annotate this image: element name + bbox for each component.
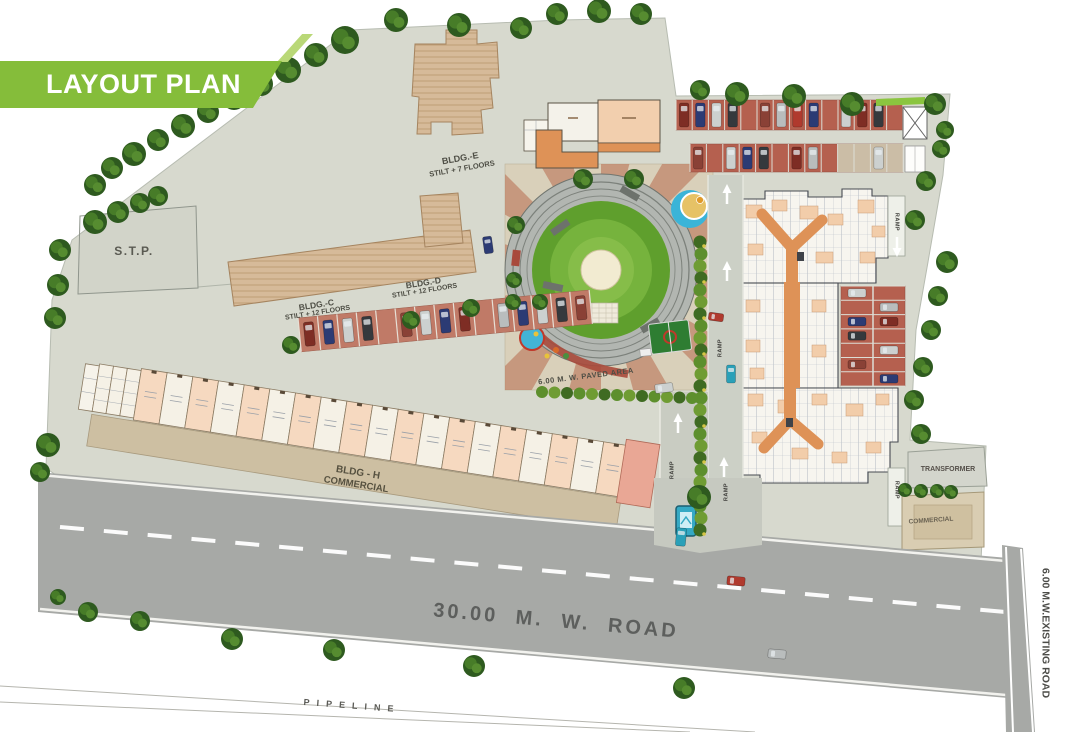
tree-icon bbox=[624, 169, 644, 189]
transformer-label: TRANSFORMER bbox=[921, 466, 975, 474]
page-title: LAYOUT PLAN bbox=[46, 69, 241, 100]
room bbox=[772, 200, 787, 211]
tree-icon bbox=[107, 201, 129, 223]
car-icon bbox=[848, 360, 866, 369]
room bbox=[746, 300, 760, 312]
parking-area-mid bbox=[841, 286, 905, 386]
tree-icon bbox=[101, 157, 123, 179]
tree-icon bbox=[147, 129, 169, 151]
tree-icon bbox=[36, 433, 60, 457]
layout-plan-canvas: LAYOUT PLAN S.T.P. BLDG.-E STILT + 7 FLO… bbox=[0, 0, 1080, 732]
car-icon bbox=[693, 147, 703, 169]
room bbox=[872, 226, 885, 237]
car-icon bbox=[792, 147, 802, 169]
tree-icon bbox=[506, 272, 522, 288]
tree-icon bbox=[463, 655, 485, 677]
tree-icon bbox=[331, 26, 359, 54]
tree-icon bbox=[323, 639, 345, 661]
tree-icon bbox=[546, 3, 568, 25]
tree-icon bbox=[507, 216, 525, 234]
tree-icon bbox=[384, 8, 408, 32]
title-banner: LAYOUT PLAN bbox=[0, 61, 282, 108]
room bbox=[812, 394, 827, 405]
tree-icon bbox=[904, 390, 924, 410]
car-icon bbox=[759, 147, 769, 169]
car-icon bbox=[482, 236, 493, 254]
tree-icon bbox=[573, 169, 593, 189]
tree-icon bbox=[905, 210, 925, 230]
car-icon bbox=[768, 649, 787, 660]
tree-icon bbox=[78, 602, 98, 622]
car-icon bbox=[675, 528, 687, 547]
lift-core bbox=[786, 418, 793, 427]
room bbox=[816, 252, 833, 263]
room bbox=[866, 442, 881, 453]
car-icon bbox=[880, 303, 898, 312]
tree-icon bbox=[687, 485, 711, 509]
tree-icon bbox=[782, 84, 806, 108]
car-icon bbox=[760, 103, 770, 127]
car-icon bbox=[809, 103, 819, 127]
car-icon bbox=[880, 317, 898, 326]
car-icon bbox=[726, 147, 736, 169]
car-icon bbox=[361, 316, 373, 341]
tree-icon bbox=[840, 92, 864, 116]
tree-icon bbox=[130, 611, 150, 631]
tree-icon bbox=[913, 357, 933, 377]
car-icon bbox=[575, 295, 587, 320]
room bbox=[812, 345, 826, 357]
tree-icon bbox=[928, 286, 948, 306]
car-icon bbox=[439, 308, 451, 333]
car-icon bbox=[323, 320, 335, 345]
car-icon bbox=[556, 297, 568, 322]
tree-icon bbox=[898, 483, 912, 497]
bldg-c-wing bbox=[420, 193, 463, 247]
tree-icon bbox=[402, 311, 420, 329]
tree-icon bbox=[630, 3, 652, 25]
tree-icon bbox=[44, 307, 66, 329]
car-icon bbox=[728, 103, 738, 127]
hatched-box-icon bbox=[903, 107, 927, 172]
tree-icon bbox=[221, 628, 243, 650]
tree-icon bbox=[587, 0, 611, 23]
room bbox=[860, 252, 875, 263]
tree-icon bbox=[462, 299, 480, 317]
tree-icon bbox=[924, 93, 946, 115]
car-icon bbox=[874, 103, 884, 127]
car-icon bbox=[303, 322, 315, 347]
ramp-label: RAMP bbox=[893, 481, 900, 499]
room bbox=[858, 200, 874, 213]
tree-icon bbox=[911, 424, 931, 444]
tree-icon bbox=[921, 320, 941, 340]
car-icon bbox=[696, 103, 706, 127]
tree-icon bbox=[936, 251, 958, 273]
car-icon bbox=[848, 332, 866, 341]
tree-icon bbox=[84, 174, 106, 196]
room bbox=[832, 452, 847, 463]
car-icon bbox=[655, 382, 674, 393]
room bbox=[792, 448, 808, 459]
car-icon bbox=[420, 310, 432, 335]
bench bbox=[640, 348, 652, 356]
tree-icon bbox=[914, 484, 928, 498]
car-icon bbox=[848, 317, 866, 326]
tree-icon bbox=[673, 677, 695, 699]
tree-icon bbox=[532, 294, 548, 310]
car-icon bbox=[743, 147, 753, 169]
existing-road-label: 6.00 M.W.EXISTING ROAD bbox=[1039, 568, 1052, 698]
tree-icon bbox=[690, 80, 710, 100]
tree-icon bbox=[282, 336, 300, 354]
tree-icon bbox=[47, 274, 69, 296]
car-icon bbox=[708, 312, 724, 322]
play-item bbox=[553, 347, 559, 353]
lift-core bbox=[797, 252, 804, 261]
tree-icon bbox=[30, 462, 50, 482]
room bbox=[800, 206, 818, 219]
ramp-label: RAMP bbox=[893, 213, 900, 231]
tree-icon bbox=[510, 17, 532, 39]
tree-icon bbox=[130, 193, 150, 213]
play-item bbox=[545, 354, 550, 359]
tree-icon bbox=[944, 485, 958, 499]
tree-icon bbox=[447, 13, 471, 37]
car-icon bbox=[808, 147, 818, 169]
room bbox=[846, 404, 863, 416]
flower-bed bbox=[511, 250, 521, 267]
room bbox=[876, 394, 889, 405]
car-icon bbox=[727, 576, 746, 587]
car-icon bbox=[880, 346, 898, 355]
tree-icon bbox=[122, 142, 146, 166]
car-icon bbox=[342, 318, 354, 343]
basketball-court-icon bbox=[648, 320, 691, 355]
tree-icon bbox=[932, 140, 950, 158]
car-icon bbox=[777, 103, 787, 127]
ramp-label: RAMP bbox=[718, 339, 725, 357]
room bbox=[748, 244, 763, 255]
room bbox=[828, 214, 843, 225]
stp-label: S.T.P. bbox=[114, 244, 153, 258]
tree-icon bbox=[148, 186, 168, 206]
splash-pool-icon bbox=[671, 190, 709, 228]
car-icon bbox=[874, 147, 884, 169]
room bbox=[748, 394, 763, 406]
car-icon bbox=[848, 289, 866, 298]
tree-icon bbox=[50, 589, 66, 605]
tree-icon bbox=[725, 82, 749, 106]
room bbox=[746, 340, 760, 352]
tree-icon bbox=[930, 484, 944, 498]
tree-icon bbox=[505, 294, 521, 310]
tree-icon bbox=[916, 171, 936, 191]
tree-icon bbox=[304, 43, 328, 67]
room bbox=[750, 368, 764, 379]
tree-icon bbox=[83, 210, 107, 234]
play-item bbox=[563, 353, 569, 359]
car-icon bbox=[679, 103, 689, 127]
tree-icon bbox=[171, 114, 195, 138]
car-icon bbox=[880, 375, 898, 384]
car-icon bbox=[727, 365, 736, 383]
tree-icon bbox=[936, 121, 954, 139]
ramp-label: RAMP bbox=[724, 483, 731, 501]
car-icon bbox=[712, 103, 722, 127]
tree-icon bbox=[49, 239, 71, 261]
room bbox=[812, 300, 826, 312]
ramp-label: RAMP bbox=[670, 461, 677, 479]
